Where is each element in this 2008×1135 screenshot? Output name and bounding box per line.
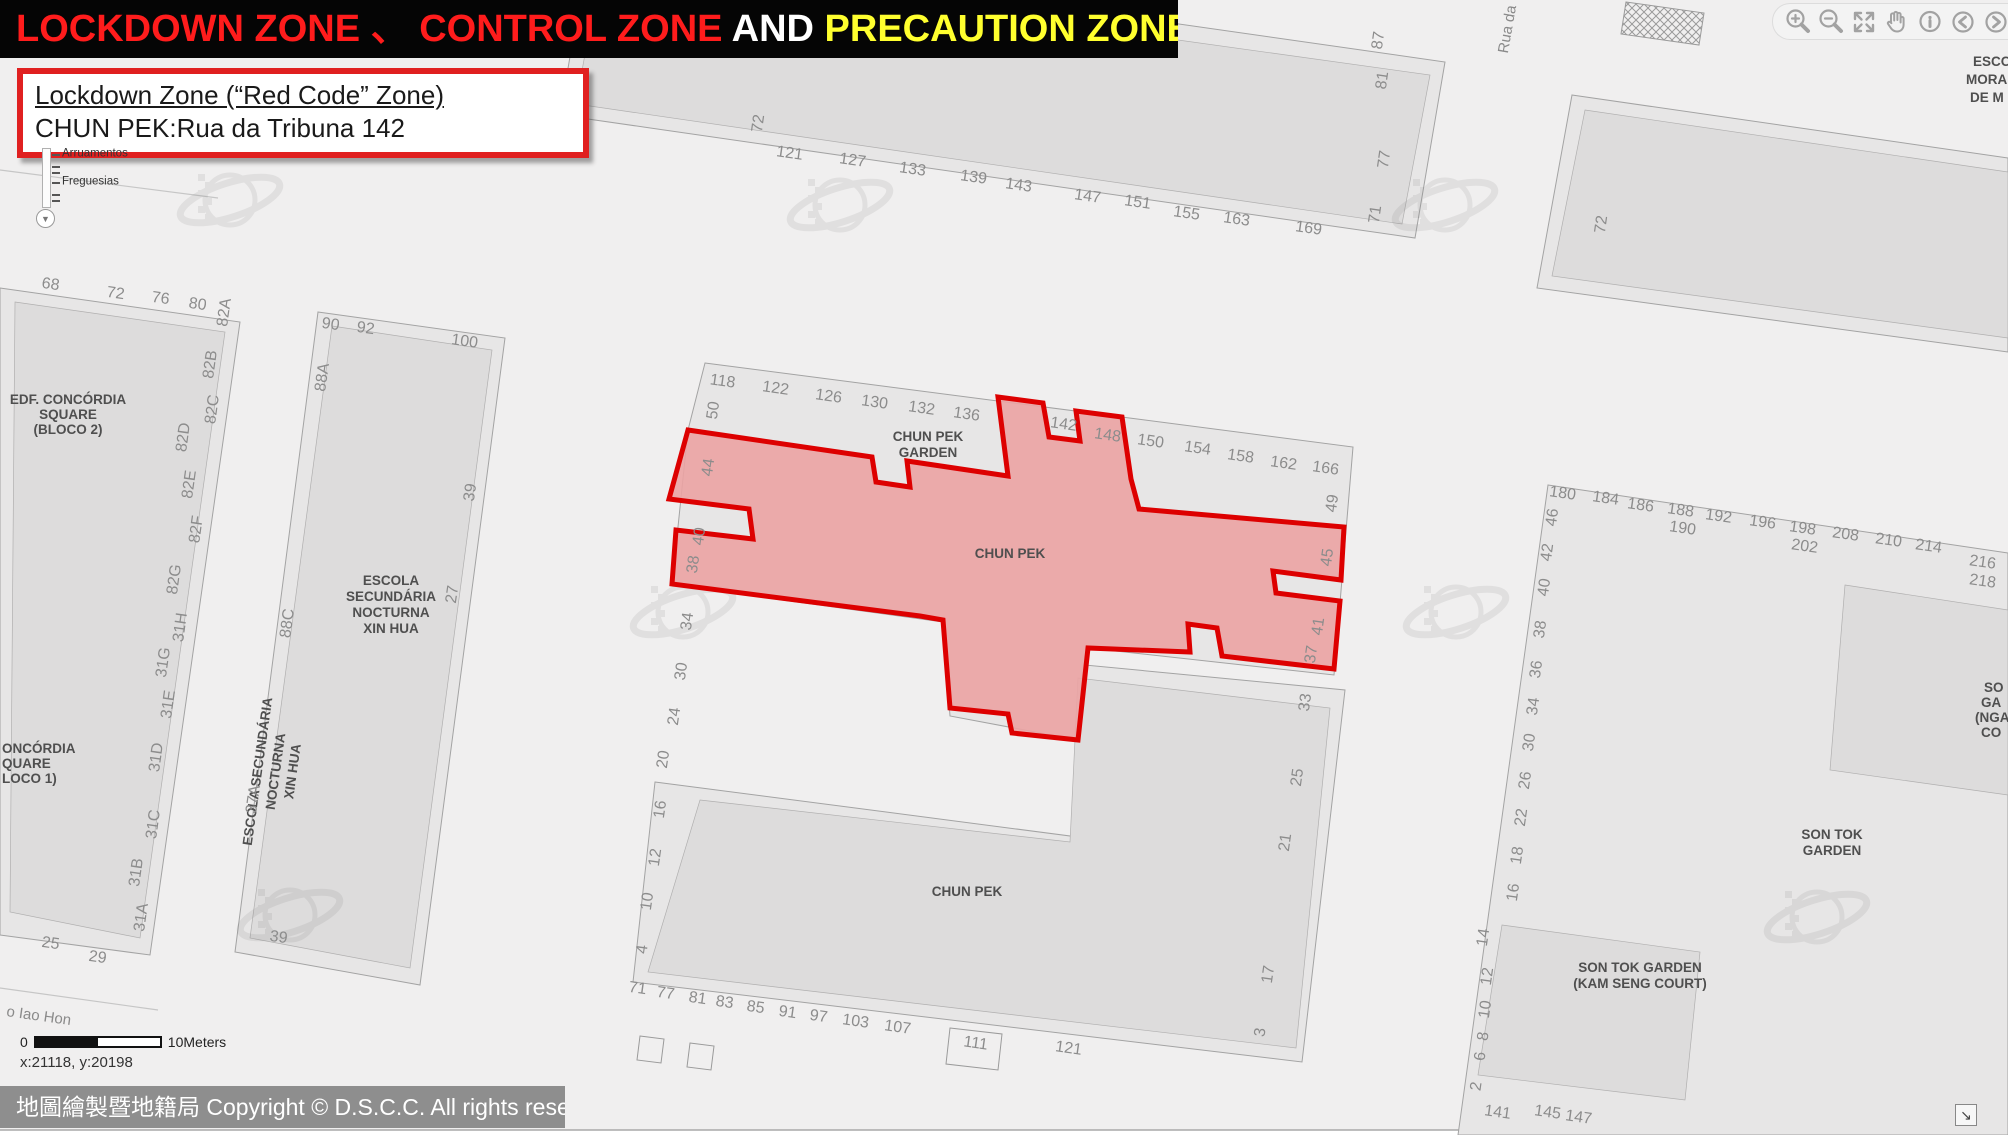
map-label: 68	[41, 275, 61, 294]
map-label: CO	[1981, 725, 2001, 740]
lockdown-zone-address: CHUN PEK:Rua da Tribuna 142	[35, 112, 571, 145]
slider-label-freguesias: Freguesias	[62, 175, 119, 187]
map-label: ESCO	[1973, 54, 2008, 69]
scale-bar: 0 10Meters	[20, 1034, 226, 1050]
map-label: NOCTURNA	[352, 605, 429, 620]
map-label: SQUARE	[39, 407, 97, 422]
map-label: 111	[962, 1033, 989, 1053]
map-label: 42	[1538, 542, 1557, 562]
map-label: 71	[1366, 204, 1385, 224]
map-label: CHUN PEK	[893, 429, 964, 444]
full-extent-button[interactable]	[1849, 7, 1879, 37]
map-label: XIN HUA	[363, 621, 419, 636]
zoom-out-icon	[1816, 7, 1846, 37]
zoom-in-icon	[1783, 7, 1813, 37]
small-building	[637, 1036, 664, 1063]
pan-hand-icon	[1882, 7, 1912, 37]
scale-bar-graphic	[34, 1036, 162, 1048]
map-label: 92	[356, 319, 376, 338]
slider-tick	[52, 200, 60, 202]
coordinate-readout: x:21118, y:20198	[20, 1054, 133, 1071]
map-label: LOCO 1)	[2, 771, 57, 786]
map-label: 16	[1504, 882, 1523, 902]
map-toolbar	[1772, 3, 2008, 40]
map-label: 33	[1296, 692, 1315, 712]
map-label: 80	[188, 295, 208, 314]
full-extent-icon	[1849, 7, 1879, 37]
map-label: SON TOK GARDEN	[1578, 960, 1702, 975]
map-label: 12	[1478, 966, 1497, 986]
map-label: 90	[321, 315, 341, 334]
map-label: 45	[1318, 547, 1337, 567]
map-label: EDF. CONCÓRDIA	[10, 392, 127, 407]
scale-start: 0	[20, 1034, 28, 1050]
next-extent-button[interactable]	[1981, 7, 2008, 37]
map-label: (KAM SENG COURT)	[1573, 976, 1707, 991]
map-canvas[interactable]: 7212112713313914314715115516316987817771…	[0, 0, 2008, 1135]
map-label: 72	[106, 284, 126, 303]
map-label: 76	[151, 289, 171, 308]
map-label: 10	[638, 891, 657, 911]
lockdown-zone-title: Lockdown Zone (“Red Code” Zone)	[35, 79, 571, 112]
map-label: 30	[1520, 732, 1539, 752]
map-label: 97	[809, 1007, 829, 1026]
map-label: 24	[665, 706, 684, 726]
map-label: (NGA	[1975, 710, 2008, 725]
identify-button[interactable]	[1915, 7, 1945, 37]
map-label: CHUN PEK	[932, 884, 1003, 899]
map-label: 17	[1259, 964, 1278, 984]
map-label: 81	[688, 989, 708, 1008]
pan-button[interactable]	[1882, 7, 1912, 37]
map-label: 40	[690, 526, 709, 546]
scale-end: 10Meters	[168, 1034, 226, 1050]
map-label: 16	[651, 799, 670, 819]
map-label: 71	[628, 979, 648, 998]
resize-arrow-icon: ↘	[1960, 1107, 1972, 1124]
map-label: 34	[678, 611, 697, 631]
map-label: 26	[1516, 770, 1535, 790]
map-label: 34	[1524, 696, 1543, 716]
slider-tick	[52, 194, 60, 196]
map-label: 77	[656, 984, 676, 1003]
map-label: 77	[1375, 149, 1394, 169]
map-label: GARDEN	[1803, 843, 1862, 858]
map-label: SON TOK	[1801, 827, 1863, 842]
resize-handle[interactable]: ↘	[1955, 1104, 1977, 1126]
map-label: 27	[443, 584, 462, 604]
slider-expand-button[interactable]: ▼	[36, 209, 55, 228]
map-label: 36	[1527, 659, 1546, 679]
map-label: 85	[746, 998, 766, 1017]
map-label: ESCOLA	[363, 573, 420, 588]
map-label: 30	[672, 661, 691, 681]
map-label: SO	[1984, 680, 2004, 695]
previous-extent-button[interactable]	[1948, 7, 1978, 37]
map-label: CHUN PEK	[975, 546, 1046, 561]
map-label: 12	[646, 847, 665, 867]
map-label: 20	[654, 749, 673, 769]
map-label: 21	[1276, 832, 1295, 852]
building-footprint	[1830, 585, 2008, 795]
map-label: (BLOCO 2)	[34, 422, 103, 437]
slider-label-arruamentos: Arruamentos	[62, 147, 128, 159]
lockdown-info-box: Lockdown Zone (“Red Code” Zone) CHUN PEK…	[17, 68, 589, 158]
map-label: 14	[1474, 927, 1493, 947]
back-arrow-icon	[1948, 7, 1978, 37]
map-label: 37	[1302, 644, 1321, 664]
map-label: GARDEN	[899, 445, 958, 460]
map-label: 40	[1535, 577, 1554, 597]
map-label: 118	[709, 371, 737, 391]
map-label: ONCÓRDIA	[2, 741, 76, 756]
chevron-down-icon: ▼	[41, 214, 50, 224]
map-label: 18	[1508, 845, 1527, 865]
map-label: 22	[1512, 807, 1531, 827]
map-label: 50	[704, 400, 723, 420]
zone-banner: LOCKDOWN ZONE 、 CONTROL ZONE AND PRECAUT…	[0, 0, 1178, 58]
map-label: 39	[269, 928, 289, 947]
map-label: 25	[1288, 767, 1307, 787]
map-label: 91	[778, 1003, 798, 1022]
map-viewer: 7212112713313914314715115516316987817771…	[0, 0, 2008, 1135]
map-label: 39	[461, 482, 480, 502]
forward-arrow-icon	[1981, 7, 2008, 37]
info-icon	[1915, 7, 1945, 37]
map-label: 49	[1323, 493, 1342, 513]
map-label: 41	[1309, 616, 1328, 636]
map-label: GA	[1981, 695, 2002, 710]
map-label: QUARE	[2, 756, 51, 771]
zoom-out-button[interactable]	[1816, 7, 1846, 37]
slider-tick	[52, 182, 60, 184]
map-label: 72	[749, 113, 768, 133]
small-building	[687, 1043, 714, 1070]
map-label: 44	[699, 457, 718, 477]
building-footprint	[1478, 925, 1700, 1100]
map-label: 10	[1476, 999, 1495, 1019]
slider-track[interactable]	[42, 148, 51, 208]
map-label: 46	[1543, 507, 1562, 527]
slider-tick	[52, 166, 60, 168]
copyright-bar: 地圖繪製暨地籍局 Copyright © D.S.C.C. All rights…	[0, 1086, 565, 1128]
slider-tick	[52, 154, 60, 156]
map-label: MORA	[1966, 72, 2007, 87]
map-label: 83	[715, 993, 735, 1012]
map-label: SECUNDÁRIA	[346, 589, 436, 604]
slider-tick	[52, 172, 60, 174]
map-label: 87	[1369, 30, 1388, 50]
banner-text: LOCKDOWN ZONE 、 CONTROL ZONE AND PRECAUT…	[16, 8, 1178, 50]
map-label: 29	[88, 948, 108, 967]
map-label: 25	[41, 934, 61, 953]
map-label: 38	[684, 554, 703, 574]
map-label: DE M	[1970, 90, 2004, 105]
map-label: 38	[1531, 619, 1550, 639]
map-label: 81	[1373, 70, 1392, 90]
layer-zoom-slider[interactable]: Arruamentos Freguesias ▼	[36, 148, 186, 238]
map-label: 72	[1592, 214, 1611, 234]
zoom-in-button[interactable]	[1783, 7, 1813, 37]
